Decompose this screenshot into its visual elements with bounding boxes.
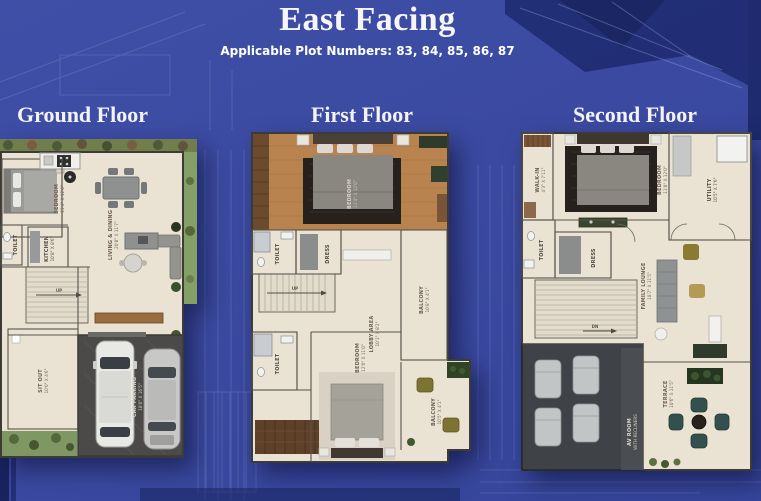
svg-text:WITH RECLINERS: WITH RECLINERS xyxy=(633,414,638,450)
terrace-label: TERRACE 10'6" X 11'5" xyxy=(663,380,674,408)
svg-text:12'0" X 11'0": 12'0" X 11'0" xyxy=(361,344,366,372)
svg-text:20'8" X 11'7": 20'8" X 11'7" xyxy=(114,221,119,249)
svg-text:10'5" X 7'6": 10'5" X 7'6" xyxy=(713,177,718,202)
garden-patch xyxy=(2,431,77,456)
svg-text:10'6" X 11'5": 10'6" X 11'5" xyxy=(669,380,674,408)
walk-in-label: WALK-IN 4'3" X 7'11" xyxy=(535,167,546,192)
svg-text:TOILET: TOILET xyxy=(275,353,281,374)
svg-text:TOILET: TOILET xyxy=(539,239,545,260)
stairs-up-label: UP xyxy=(56,288,62,293)
dress-label: DRESS xyxy=(591,248,597,268)
bedroom-label: BEDROOM 11'8" X 12'0" xyxy=(657,165,668,195)
side-balcony-label: BALCONY 10'8" X 4'1" xyxy=(419,286,430,314)
utility-label: UTILITY 10'5" X 7'6" xyxy=(707,177,718,202)
page-subtitle: Applicable Plot Numbers: 83, 84, 85, 86,… xyxy=(0,44,735,58)
ground-floor-plan: UP xyxy=(0,139,197,480)
svg-text:11'8" X 12'0": 11'8" X 12'0" xyxy=(663,166,668,194)
second-floor-caption: Second Floor xyxy=(542,102,728,128)
bedroom-top-label: BEDROOM 11'4" X 12'0" xyxy=(347,179,358,209)
toilet-bottom-label: TOILET xyxy=(275,353,281,374)
svg-text:18'0" X 16'5": 18'0" X 16'5" xyxy=(138,383,143,411)
svg-text:10'8" X 4'1": 10'8" X 4'1" xyxy=(425,287,430,312)
stairs: UP xyxy=(259,274,335,312)
svg-text:10'8" X 8'6": 10'8" X 8'6" xyxy=(50,236,55,261)
svg-text:10'1" X 8'2": 10'1" X 8'2" xyxy=(375,321,380,346)
bedroom-bottom xyxy=(319,372,395,460)
page: East Facing Applicable Plot Numbers: 83,… xyxy=(0,0,761,501)
car-sedan xyxy=(144,349,180,449)
tv-console xyxy=(579,218,627,227)
ground-floor-caption: Ground Floor xyxy=(0,102,165,128)
sitout-label: SIT OUT 10'0" X 4'6" xyxy=(38,368,49,393)
page-title: East Facing xyxy=(0,1,735,39)
first-floor-caption: First Floor xyxy=(272,102,452,128)
av-room-label: AV ROOM WITH RECLINERS xyxy=(627,414,638,450)
bedroom-bottom-label: BEDROOM 12'0" X 11'0" xyxy=(355,343,366,373)
svg-text:11'4" X 12'0": 11'4" X 12'0" xyxy=(353,180,358,208)
car-suv xyxy=(93,341,137,447)
svg-text:18'7" X 11'5": 18'7" X 11'5" xyxy=(647,272,652,300)
av-room xyxy=(522,344,643,470)
kitchen-label: KITCHEN 10'8" X 8'6" xyxy=(44,236,55,262)
svg-text:DRESS: DRESS xyxy=(325,244,331,264)
stairs-dn-label: DN xyxy=(592,324,599,329)
stairs: UP xyxy=(26,267,88,323)
svg-text:10'5" X 4'1": 10'5" X 4'1" xyxy=(437,399,442,424)
dress-label: DRESS xyxy=(325,244,331,264)
svg-text:10'0" X 4'6": 10'0" X 4'6" xyxy=(44,368,49,393)
toilet-label: TOILET xyxy=(13,234,19,255)
svg-text:DRESS: DRESS xyxy=(591,248,597,268)
stairs-up-label: UP xyxy=(292,286,298,291)
bottom-balcony-label: BALCONY 10'5" X 4'1" xyxy=(431,398,442,426)
svg-text:TOILET: TOILET xyxy=(275,243,281,264)
second-floor-plan: DN WAL xyxy=(521,132,753,472)
svg-text:4'3" X 7'11": 4'3" X 7'11" xyxy=(541,167,546,192)
toilet-label: TOILET xyxy=(539,239,545,260)
bedroom-label: BEDROOM 11'4" X 12'0" xyxy=(54,184,65,214)
svg-text:11'4" X 12'0": 11'4" X 12'0" xyxy=(60,185,65,213)
stairs: DN xyxy=(535,280,637,338)
toilet-top-label: TOILET xyxy=(275,243,281,264)
console-bench xyxy=(95,313,163,323)
first-floor-plan: UP xyxy=(251,132,471,464)
tv-console xyxy=(343,250,391,260)
svg-text:TOILET: TOILET xyxy=(13,234,19,255)
